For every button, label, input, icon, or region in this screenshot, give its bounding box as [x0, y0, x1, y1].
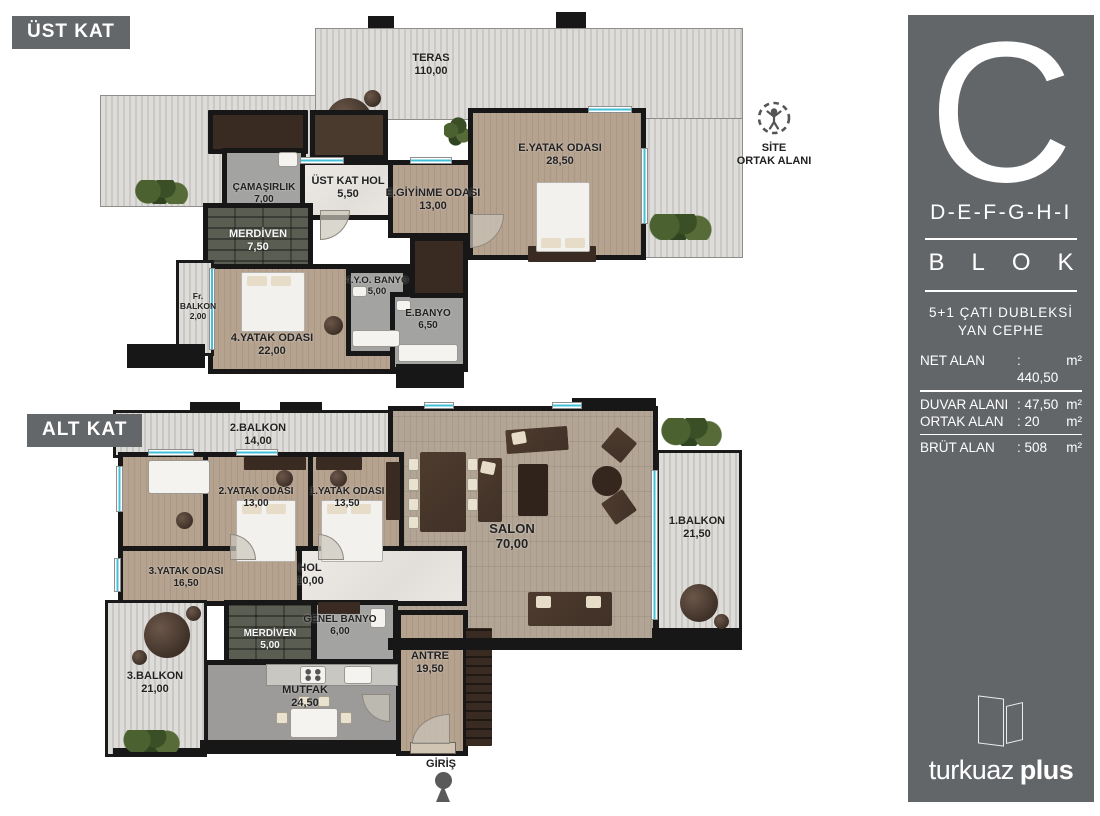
block-range: D-E-F-G-H-I	[930, 201, 1072, 225]
tv-unit	[518, 464, 548, 516]
room-label-ust-kat-hol: ÜST KAT HOL 5,50	[311, 175, 384, 200]
window	[641, 148, 648, 224]
pillow	[247, 276, 267, 286]
chair	[408, 478, 419, 491]
room-label-2yatak: 2.YATAK ODASI 13,00	[219, 486, 294, 509]
floorplan-page: TERAS 110,00 ÇAMAŞIRLIK 7,00 ÜST KAT HOL…	[0, 0, 1100, 816]
room-label-fr-balkon: Fr. BALKON 2,00	[175, 292, 221, 321]
chair	[408, 498, 419, 511]
door-arc	[320, 210, 350, 240]
wall-segment	[556, 12, 586, 28]
window	[410, 157, 452, 164]
room-label-2balkon: 2.BALKON 14,00	[230, 422, 286, 447]
pillow	[536, 596, 551, 608]
bathtub	[398, 344, 458, 362]
divider	[925, 290, 1077, 292]
kitchen-table	[290, 708, 338, 738]
side-table	[324, 316, 343, 335]
pillow	[511, 431, 527, 445]
desk	[148, 460, 210, 494]
window	[236, 449, 278, 456]
room-label-eyatak: E.YATAK ODASI 28,50	[518, 142, 602, 167]
entrance-label: GİRİŞ	[426, 758, 456, 771]
logo-text: turkuazplus	[929, 755, 1074, 786]
divider	[920, 390, 1082, 392]
area-row-ortak: ORTAK ALAN : 20 m²	[920, 413, 1082, 430]
kitchen-sink	[344, 666, 372, 684]
wardrobe-block	[316, 457, 362, 470]
bath-counter	[318, 602, 360, 614]
room-label-salon: SALON 70,00	[489, 522, 535, 552]
dining-table	[420, 452, 466, 532]
pillow	[565, 238, 585, 248]
window	[651, 470, 658, 620]
kitchen-counter	[266, 664, 398, 686]
room-label-merdiven-upper: MERDİVEN 7,50	[229, 228, 287, 253]
room-label-genel-banyo: GENEL BANYO 6,00	[303, 614, 376, 637]
chair	[467, 458, 478, 471]
lower-floor-badge: ALT KAT	[27, 414, 142, 447]
wardrobe-block	[310, 110, 388, 160]
wall-segment	[200, 740, 400, 754]
pillow	[480, 461, 496, 476]
chair	[408, 516, 419, 529]
plant	[134, 180, 190, 204]
chair	[408, 458, 419, 471]
divider	[920, 434, 1082, 436]
window	[424, 402, 454, 409]
balcony-table	[680, 584, 718, 622]
plant	[660, 418, 724, 446]
chair	[132, 650, 147, 665]
plant	[444, 116, 470, 148]
block-letter: C	[929, 21, 1073, 205]
room-label-merdiven-lower: MERDİVEN 5,00	[244, 628, 297, 651]
room-label-ebanyo: E.BANYO 6,50	[405, 308, 451, 331]
pillow	[586, 596, 601, 608]
pillow	[541, 238, 561, 248]
logo-book-icon	[976, 697, 1026, 749]
room-teras	[315, 28, 743, 120]
area-row-duvar: DUVAR ALANI : 47,50 m²	[920, 396, 1082, 413]
wardrobe-block	[386, 462, 400, 520]
room-label-antre: ANTRE 19,50	[411, 650, 449, 675]
area-row-brut: BRÜT ALAN : 508 m²	[920, 439, 1082, 456]
chair	[276, 712, 288, 724]
site-common-label: SİTE ORTAK ALANI	[737, 142, 812, 167]
room-label-teras: TERAS 110,00	[412, 52, 449, 77]
window	[552, 402, 582, 409]
area-row-net: NET ALAN : 440,50 m²	[920, 352, 1082, 386]
chair	[330, 470, 347, 487]
window	[116, 466, 123, 512]
terrace-chair	[364, 90, 381, 107]
keyhole-icon	[433, 772, 453, 810]
pillow	[271, 276, 291, 286]
wall-segment	[396, 364, 464, 388]
wall-segment	[127, 344, 205, 368]
chair	[186, 606, 201, 621]
plant	[648, 214, 714, 240]
room-label-4yo-banyo: 4.Y.O. BANYO 5,00	[346, 276, 409, 298]
bathtub	[352, 330, 400, 347]
wardrobe-block	[410, 236, 468, 298]
area-table: NET ALAN : 440,50 m² DUVAR ALANI : 47,50…	[920, 352, 1082, 456]
chair	[276, 470, 293, 487]
room-label-egiyinme: E.GİYİNME ODASI 13,00	[386, 187, 481, 212]
brand-logo: turkuazplus	[908, 697, 1094, 786]
wall-segment	[652, 628, 742, 650]
room-label-4yatak: 4.YATAK ODASI 22,00	[231, 332, 313, 357]
chair	[340, 712, 352, 724]
unit-type: 5+1 ÇATI DUBLEKSİ YAN CEPHE	[929, 304, 1073, 339]
room-label-camasirlik: ÇAMAŞIRLIK 7,00	[233, 182, 296, 205]
window	[148, 449, 194, 456]
chair	[467, 478, 478, 491]
divider	[925, 238, 1077, 240]
info-sidebar: C D-E-F-G-H-I BLOK 5+1 ÇATI DUBLEKSİ YAN…	[908, 15, 1094, 802]
chair	[467, 498, 478, 511]
wall-segment	[388, 638, 658, 650]
room-label-mutfak: MUTFAK 24,50	[282, 684, 328, 709]
room-label-3yatak: 3.YATAK ODASI 16,50	[149, 566, 224, 589]
room-label-1yatak: 1.YATAK ODASI 13,50	[310, 486, 385, 509]
wardrobe-block	[244, 457, 306, 470]
plant	[122, 730, 182, 752]
chair	[176, 512, 193, 529]
room-label-hol: HOL 10,00	[296, 562, 324, 587]
room-label-3balkon: 3.BALKON 21,00	[127, 670, 183, 695]
washing-machine	[278, 152, 298, 167]
room-label-1balkon: 1.BALKON 21,50	[669, 515, 725, 540]
window	[588, 106, 632, 113]
chair	[714, 614, 729, 629]
balcony-table	[144, 612, 190, 658]
window	[300, 157, 344, 164]
window	[114, 558, 121, 592]
stove	[300, 666, 326, 684]
upper-floor-badge: ÜST KAT	[12, 16, 130, 49]
block-word: BLOK	[928, 249, 1100, 277]
site-common-icon	[756, 100, 792, 136]
